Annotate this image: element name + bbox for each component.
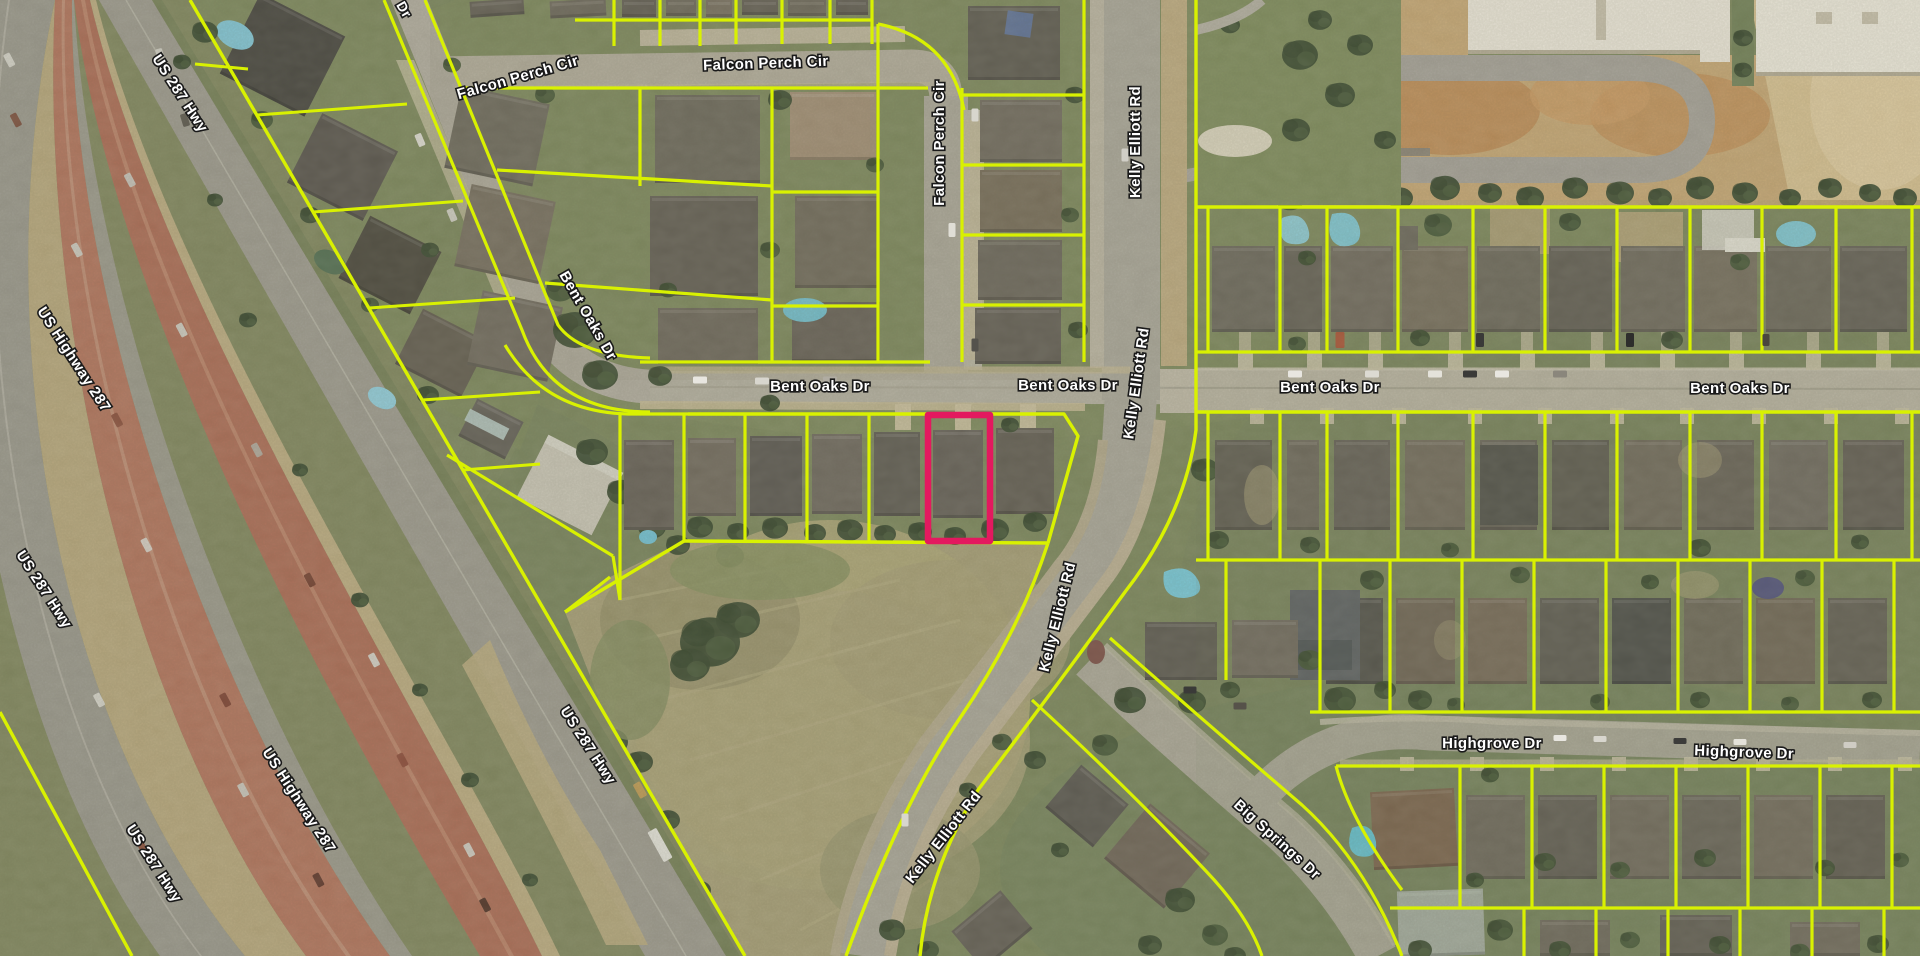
svg-text:Highgrove Dr: Highgrove Dr <box>1442 735 1542 752</box>
svg-text:Kelly Elliott Rd: Kelly Elliott Rd <box>1127 86 1144 198</box>
svg-text:Bent Oaks Dr: Bent Oaks Dr <box>770 378 870 395</box>
svg-text:Highgrove Dr: Highgrove Dr <box>1694 742 1794 762</box>
svg-text:Bent Oaks Dr: Bent Oaks Dr <box>1280 379 1380 396</box>
svg-text:Falcon Perch Cir: Falcon Perch Cir <box>931 80 948 206</box>
svg-text:Bent Oaks Dr: Bent Oaks Dr <box>1018 377 1118 394</box>
svg-text:Bent Oaks Dr: Bent Oaks Dr <box>1690 380 1790 397</box>
